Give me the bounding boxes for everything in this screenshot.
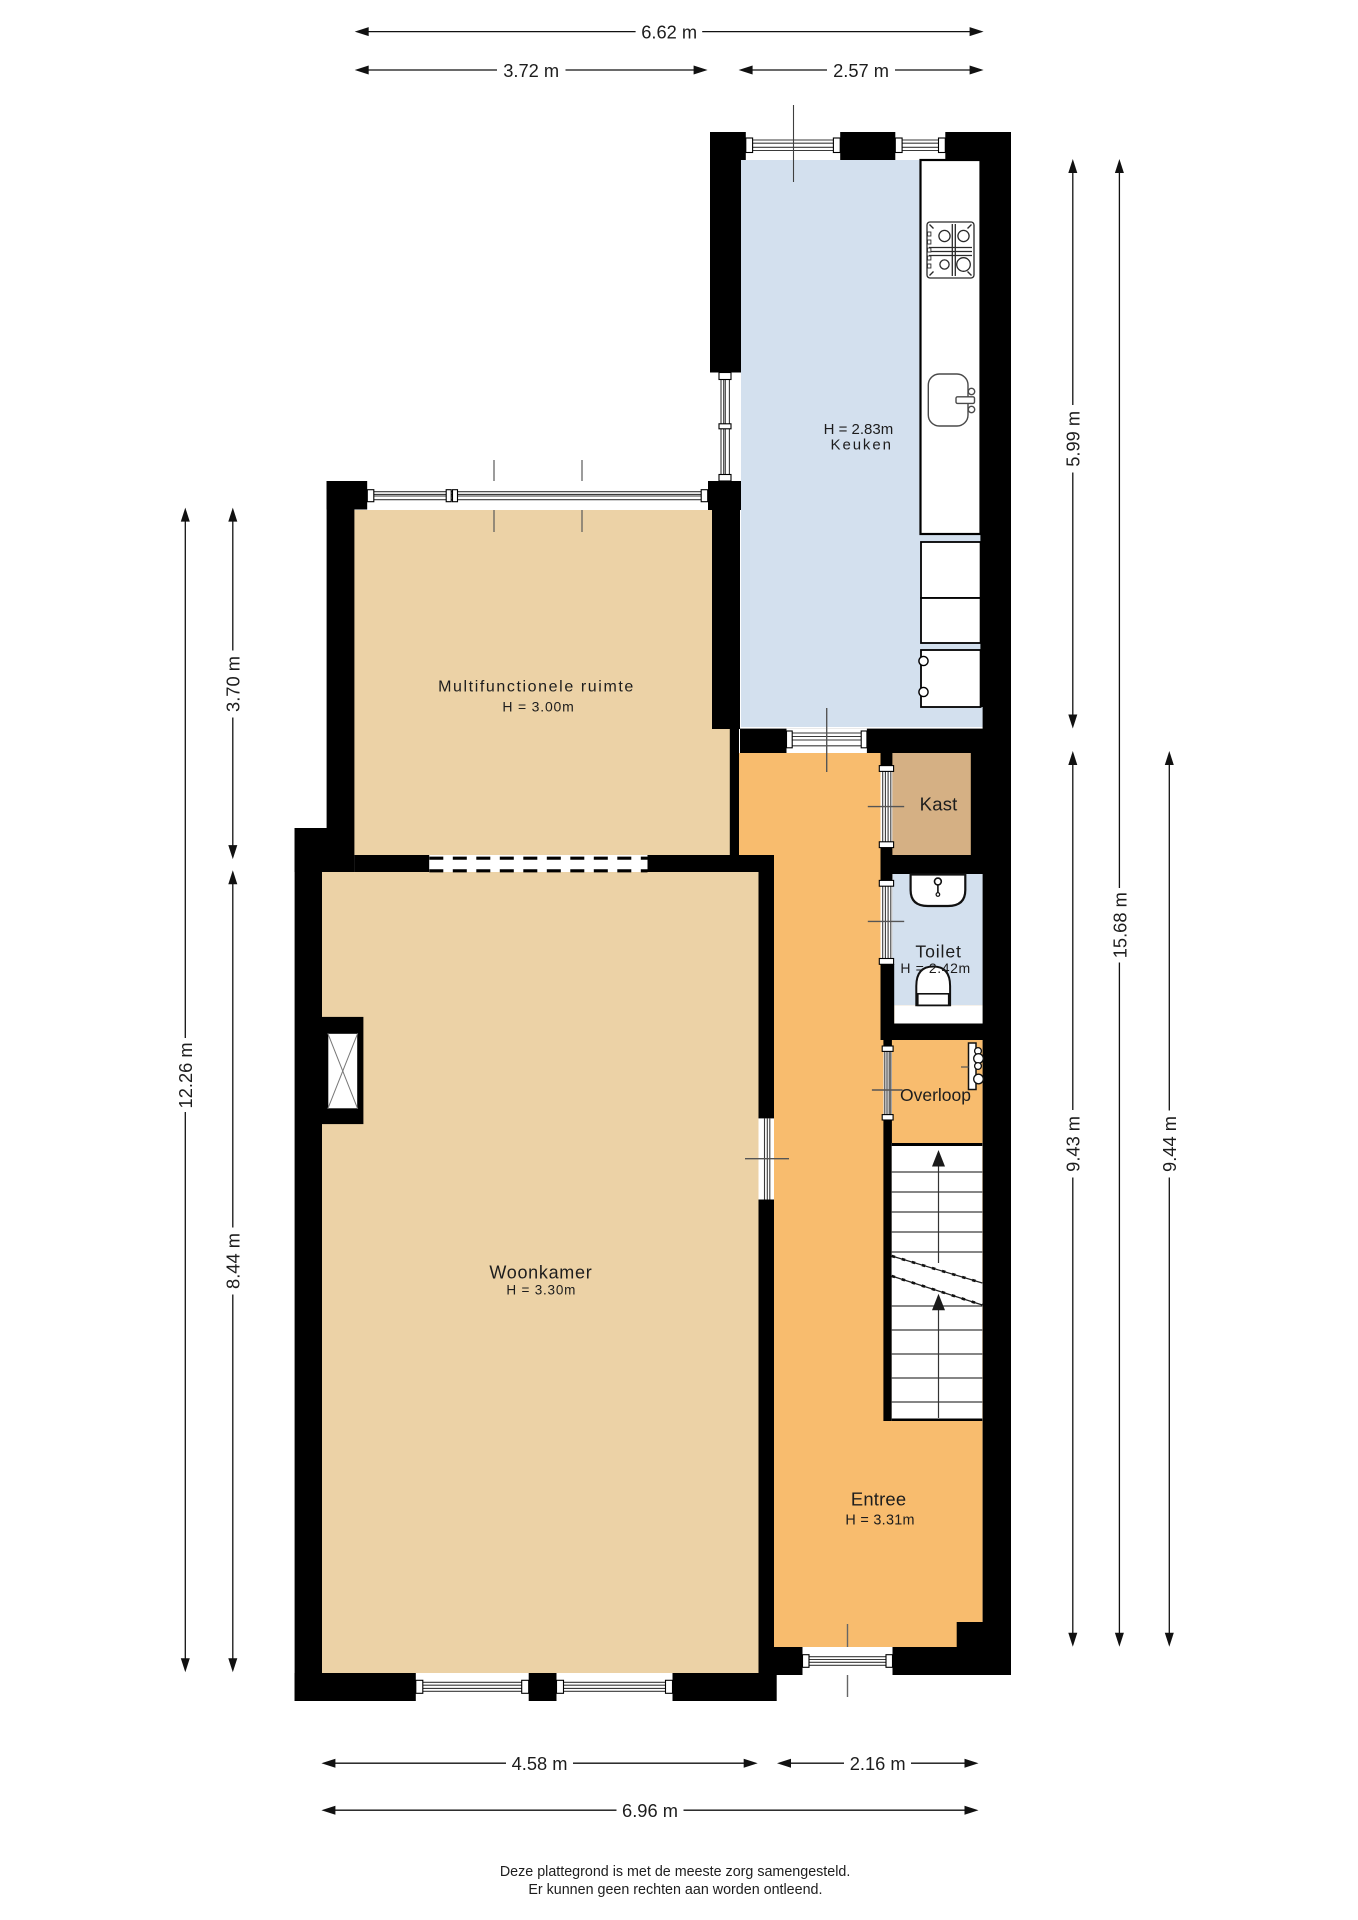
svg-text:4.58 m: 4.58 m <box>512 1753 568 1774</box>
svg-text:Entree: Entree <box>851 1488 906 1509</box>
svg-text:2.57 m: 2.57 m <box>833 60 889 81</box>
svg-text:2.16 m: 2.16 m <box>850 1753 906 1774</box>
svg-text:Woonkamer: Woonkamer <box>489 1263 592 1283</box>
svg-text:Kast: Kast <box>920 793 958 814</box>
svg-text:Multifunctionele ruimte: Multifunctionele ruimte <box>438 679 635 696</box>
svg-text:H = 3.31m: H = 3.31m <box>845 1513 915 1529</box>
svg-text:12.26 m: 12.26 m <box>175 1042 196 1108</box>
svg-text:15.68 m: 15.68 m <box>1109 892 1130 958</box>
svg-text:H = 3.30m: H = 3.30m <box>506 1283 576 1298</box>
svg-text:6.96 m: 6.96 m <box>622 1800 678 1821</box>
svg-text:H = 3.00m: H = 3.00m <box>502 699 574 715</box>
svg-text:Toilet: Toilet <box>915 941 961 961</box>
svg-text:5.99 m: 5.99 m <box>1063 411 1084 467</box>
svg-text:3.70 m: 3.70 m <box>223 656 244 712</box>
svg-text:Er kunnen geen rechten aan wor: Er kunnen geen rechten aan worden ontlee… <box>528 1882 822 1898</box>
svg-text:9.43 m: 9.43 m <box>1063 1116 1084 1172</box>
svg-text:6.62 m: 6.62 m <box>641 22 697 43</box>
svg-text:9.44 m: 9.44 m <box>1159 1116 1180 1172</box>
svg-text:3.72 m: 3.72 m <box>503 60 559 81</box>
svg-text:Keuken: Keuken <box>831 436 893 453</box>
svg-text:Deze plattegrond is met de mee: Deze plattegrond is met de meeste zorg s… <box>500 1864 850 1880</box>
svg-text:Overloop: Overloop <box>900 1085 971 1105</box>
svg-text:H = 2.83m: H = 2.83m <box>824 421 894 438</box>
svg-text:8.44 m: 8.44 m <box>223 1233 244 1289</box>
svg-text:H = 2.42m: H = 2.42m <box>900 960 970 976</box>
